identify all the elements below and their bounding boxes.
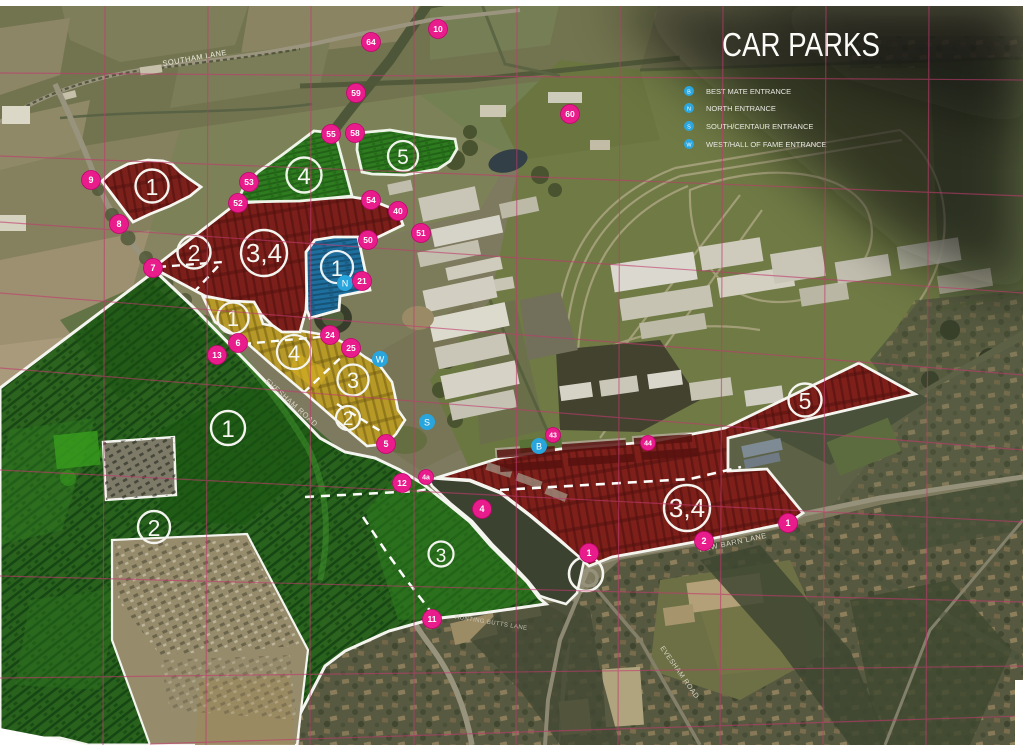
svg-text:2: 2 xyxy=(148,515,161,541)
svg-text:58: 58 xyxy=(350,128,360,138)
svg-text:64: 64 xyxy=(366,37,376,47)
svg-text:59: 59 xyxy=(351,88,361,98)
svg-text:2: 2 xyxy=(188,240,201,266)
svg-text:25: 25 xyxy=(346,343,356,353)
svg-text:44: 44 xyxy=(644,441,652,448)
svg-text:51: 51 xyxy=(416,228,426,238)
svg-text:12: 12 xyxy=(397,478,407,488)
svg-text:21: 21 xyxy=(357,276,367,286)
svg-text:9: 9 xyxy=(88,175,93,185)
svg-text:S: S xyxy=(424,418,430,428)
svg-text:7: 7 xyxy=(150,263,155,273)
svg-text:W: W xyxy=(686,143,692,149)
svg-text:50: 50 xyxy=(363,235,373,245)
svg-text:60: 60 xyxy=(565,109,575,119)
svg-text:24: 24 xyxy=(325,330,335,340)
svg-text:N: N xyxy=(687,107,691,113)
svg-text:3,4: 3,4 xyxy=(669,493,705,523)
svg-text:43: 43 xyxy=(549,433,557,440)
svg-text:53: 53 xyxy=(244,177,254,187)
svg-text:5: 5 xyxy=(383,439,388,449)
svg-text:4: 4 xyxy=(288,341,300,366)
svg-text:N: N xyxy=(342,279,349,289)
svg-text:54: 54 xyxy=(366,195,376,205)
svg-text:52: 52 xyxy=(233,198,243,208)
svg-text:B: B xyxy=(536,442,542,452)
svg-text:1: 1 xyxy=(227,306,239,331)
svg-text:CAR PARKS: CAR PARKS xyxy=(722,26,880,63)
svg-text:1: 1 xyxy=(221,416,234,443)
svg-text:S: S xyxy=(687,125,691,131)
svg-text:W: W xyxy=(376,355,385,365)
svg-text:4a: 4a xyxy=(422,475,430,482)
svg-text:1: 1 xyxy=(785,518,790,528)
svg-text:4: 4 xyxy=(297,163,310,190)
svg-text:11: 11 xyxy=(428,614,437,624)
svg-text:3: 3 xyxy=(347,368,359,393)
svg-text:NORTH ENTRANCE: NORTH ENTRANCE xyxy=(706,104,776,113)
svg-text:10: 10 xyxy=(433,24,443,34)
svg-text:3,4: 3,4 xyxy=(246,238,282,268)
svg-text:BEST MATE ENTRANCE: BEST MATE ENTRANCE xyxy=(706,87,791,96)
svg-text:WEST/HALL OF FAME ENTRANCE: WEST/HALL OF FAME ENTRANCE xyxy=(706,140,827,149)
svg-text:1: 1 xyxy=(586,548,591,558)
svg-text:5: 5 xyxy=(397,146,409,169)
svg-text:3: 3 xyxy=(436,546,447,567)
svg-text:1: 1 xyxy=(146,174,159,200)
svg-text:13: 13 xyxy=(212,350,222,360)
svg-text:2: 2 xyxy=(701,536,706,546)
svg-text:5: 5 xyxy=(799,388,812,414)
svg-text:6: 6 xyxy=(235,338,240,348)
svg-text:2: 2 xyxy=(343,409,354,430)
svg-text:55: 55 xyxy=(326,129,336,139)
svg-text:8: 8 xyxy=(116,219,121,229)
svg-text:B: B xyxy=(687,90,691,96)
svg-text:40: 40 xyxy=(393,206,403,216)
svg-text:4: 4 xyxy=(479,504,484,514)
